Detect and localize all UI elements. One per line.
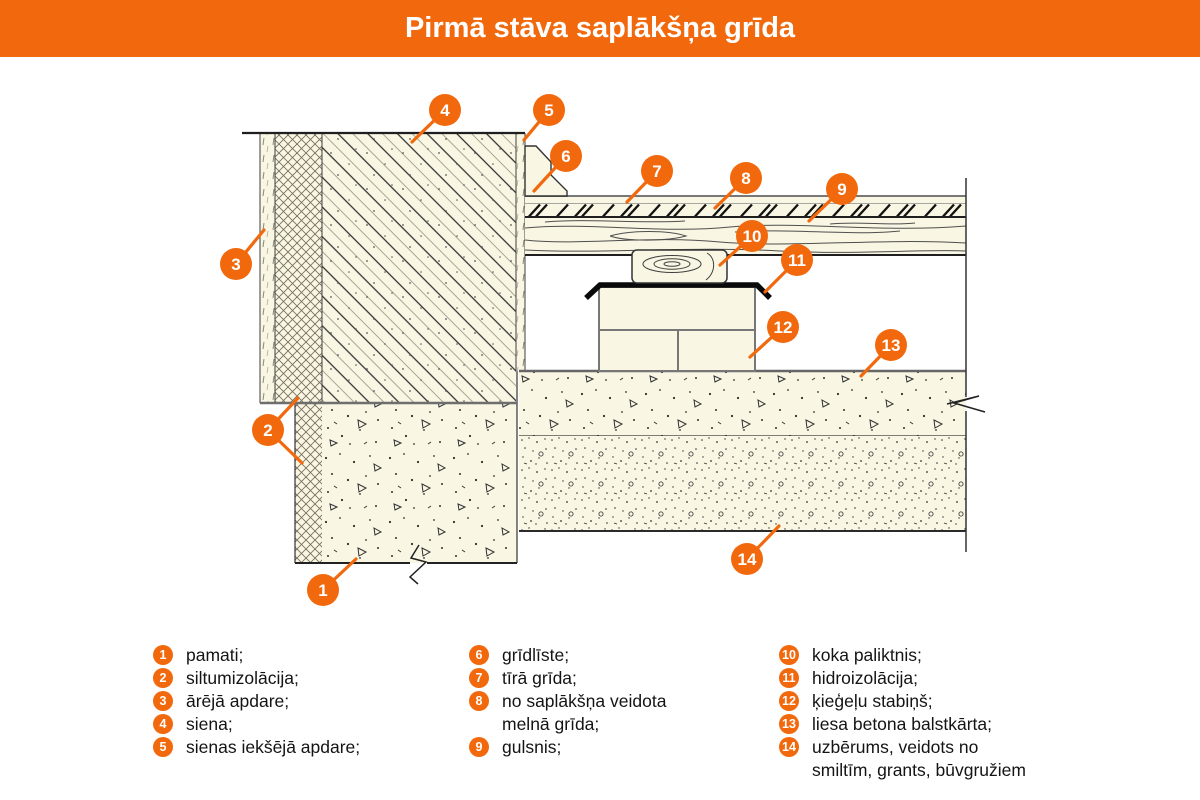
legend-item-11: 11hidroizolācija; (779, 667, 1026, 690)
legend-item-10: 10koka paliktnis; (779, 644, 1026, 667)
legend-badge: 6 (469, 645, 489, 665)
legend-item-5: 5sienas iekšējā apdare; (153, 736, 360, 759)
callout-number: 12 (774, 318, 793, 337)
legend-badge: 7 (469, 668, 489, 688)
legend-label: uzbērums, veidots nosmiltīm, grants, būv… (812, 736, 1026, 782)
brick-pier (599, 287, 755, 371)
callout-number: 6 (561, 147, 570, 166)
legend-item-8: 8no saplākšņa veidotamelnā grīda; (469, 690, 666, 736)
callout-1: 1 (307, 559, 356, 606)
page: Pirmā stāva saplākšņa grīda (0, 0, 1200, 800)
fill-layer (519, 436, 966, 531)
callout-number: 3 (231, 255, 240, 274)
legend-badge: 9 (469, 737, 489, 757)
legend-label: koka paliktnis; (812, 644, 922, 667)
finish-floor-layer (525, 196, 966, 204)
callout-number: 5 (544, 101, 553, 120)
legend-item-7: 7tīrā grīda; (469, 667, 666, 690)
legend-item-3: 3ārējā apdare; (153, 690, 360, 713)
callout-3: 3 (220, 230, 264, 280)
legend-label: no saplākšņa veidotamelnā grīda; (502, 690, 666, 736)
interior-finish-layer (516, 133, 525, 371)
legend-badge: 10 (779, 645, 799, 665)
callout-14: 14 (731, 526, 779, 575)
legend-label: gulsnis; (502, 736, 561, 759)
wood-pad (632, 250, 727, 283)
legend-badge: 12 (779, 691, 799, 711)
callout-number: 9 (837, 180, 846, 199)
legend-item-14: 14uzbērums, veidots nosmiltīm, grants, b… (779, 736, 1026, 782)
legend-label: pamati; (186, 644, 243, 667)
legend-badge: 3 (153, 691, 173, 711)
legend-item-13: 13liesa betona balstkārta; (779, 713, 1026, 736)
callout-number: 7 (652, 162, 661, 181)
lean-concrete-layer (519, 371, 966, 436)
callout-13: 13 (861, 329, 907, 376)
legend-badge: 14 (779, 737, 799, 757)
callout-number: 4 (440, 101, 450, 120)
callout-number: 13 (882, 336, 901, 355)
legend-badge: 5 (153, 737, 173, 757)
legend-column-3: 10koka paliktnis;11hidroizolācija;12ķieģ… (779, 644, 1026, 782)
legend-label: tīrā grīda; (502, 667, 577, 690)
legend-label: ķieģeļu stabiņš; (812, 690, 933, 713)
legend-badge: 13 (779, 714, 799, 734)
callout-number: 8 (741, 169, 750, 188)
callout-number: 14 (738, 550, 757, 569)
legend-label: siltumizolācija; (186, 667, 299, 690)
legend-badge: 11 (779, 668, 799, 688)
callout-7: 7 (627, 155, 673, 202)
wall-layer (322, 133, 516, 403)
legend-column-2: 6grīdlīste;7tīrā grīda;8no saplākšņa vei… (469, 644, 666, 759)
legend-label: grīdlīste; (502, 644, 569, 667)
legend-label: sienas iekšējā apdare; (186, 736, 360, 759)
legend-label: liesa betona balstkārta; (812, 713, 992, 736)
legend-item-4: 4siena; (153, 713, 360, 736)
callout-number: 1 (318, 581, 327, 600)
callout-number: 10 (743, 227, 762, 246)
callout-12: 12 (750, 311, 799, 357)
legend-label: hidroizolācija; (812, 667, 918, 690)
legend-badge: 2 (153, 668, 173, 688)
legend-badge: 4 (153, 714, 173, 734)
exterior-finish-layer (260, 133, 275, 403)
legend-item-2: 2siltumizolācija; (153, 667, 360, 690)
insulation-layer (275, 133, 322, 563)
plywood-subfloor-layer (525, 204, 966, 217)
callout-number: 2 (263, 421, 272, 440)
callout-number: 11 (788, 251, 806, 270)
legend-badge: 1 (153, 645, 173, 665)
legend-item-9: 9gulsnis; (469, 736, 666, 759)
callout-5: 5 (524, 94, 565, 140)
legend-label: siena; (186, 713, 233, 736)
legend-column-1: 1pamati;2siltumizolācija;3ārējā apdare;4… (153, 644, 360, 759)
legend-badge: 8 (469, 691, 489, 711)
legend-item-1: 1pamati; (153, 644, 360, 667)
legend-item-12: 12ķieģeļu stabiņš; (779, 690, 1026, 713)
legend-label: ārējā apdare; (186, 690, 289, 713)
legend-item-6: 6grīdlīste; (469, 644, 666, 667)
